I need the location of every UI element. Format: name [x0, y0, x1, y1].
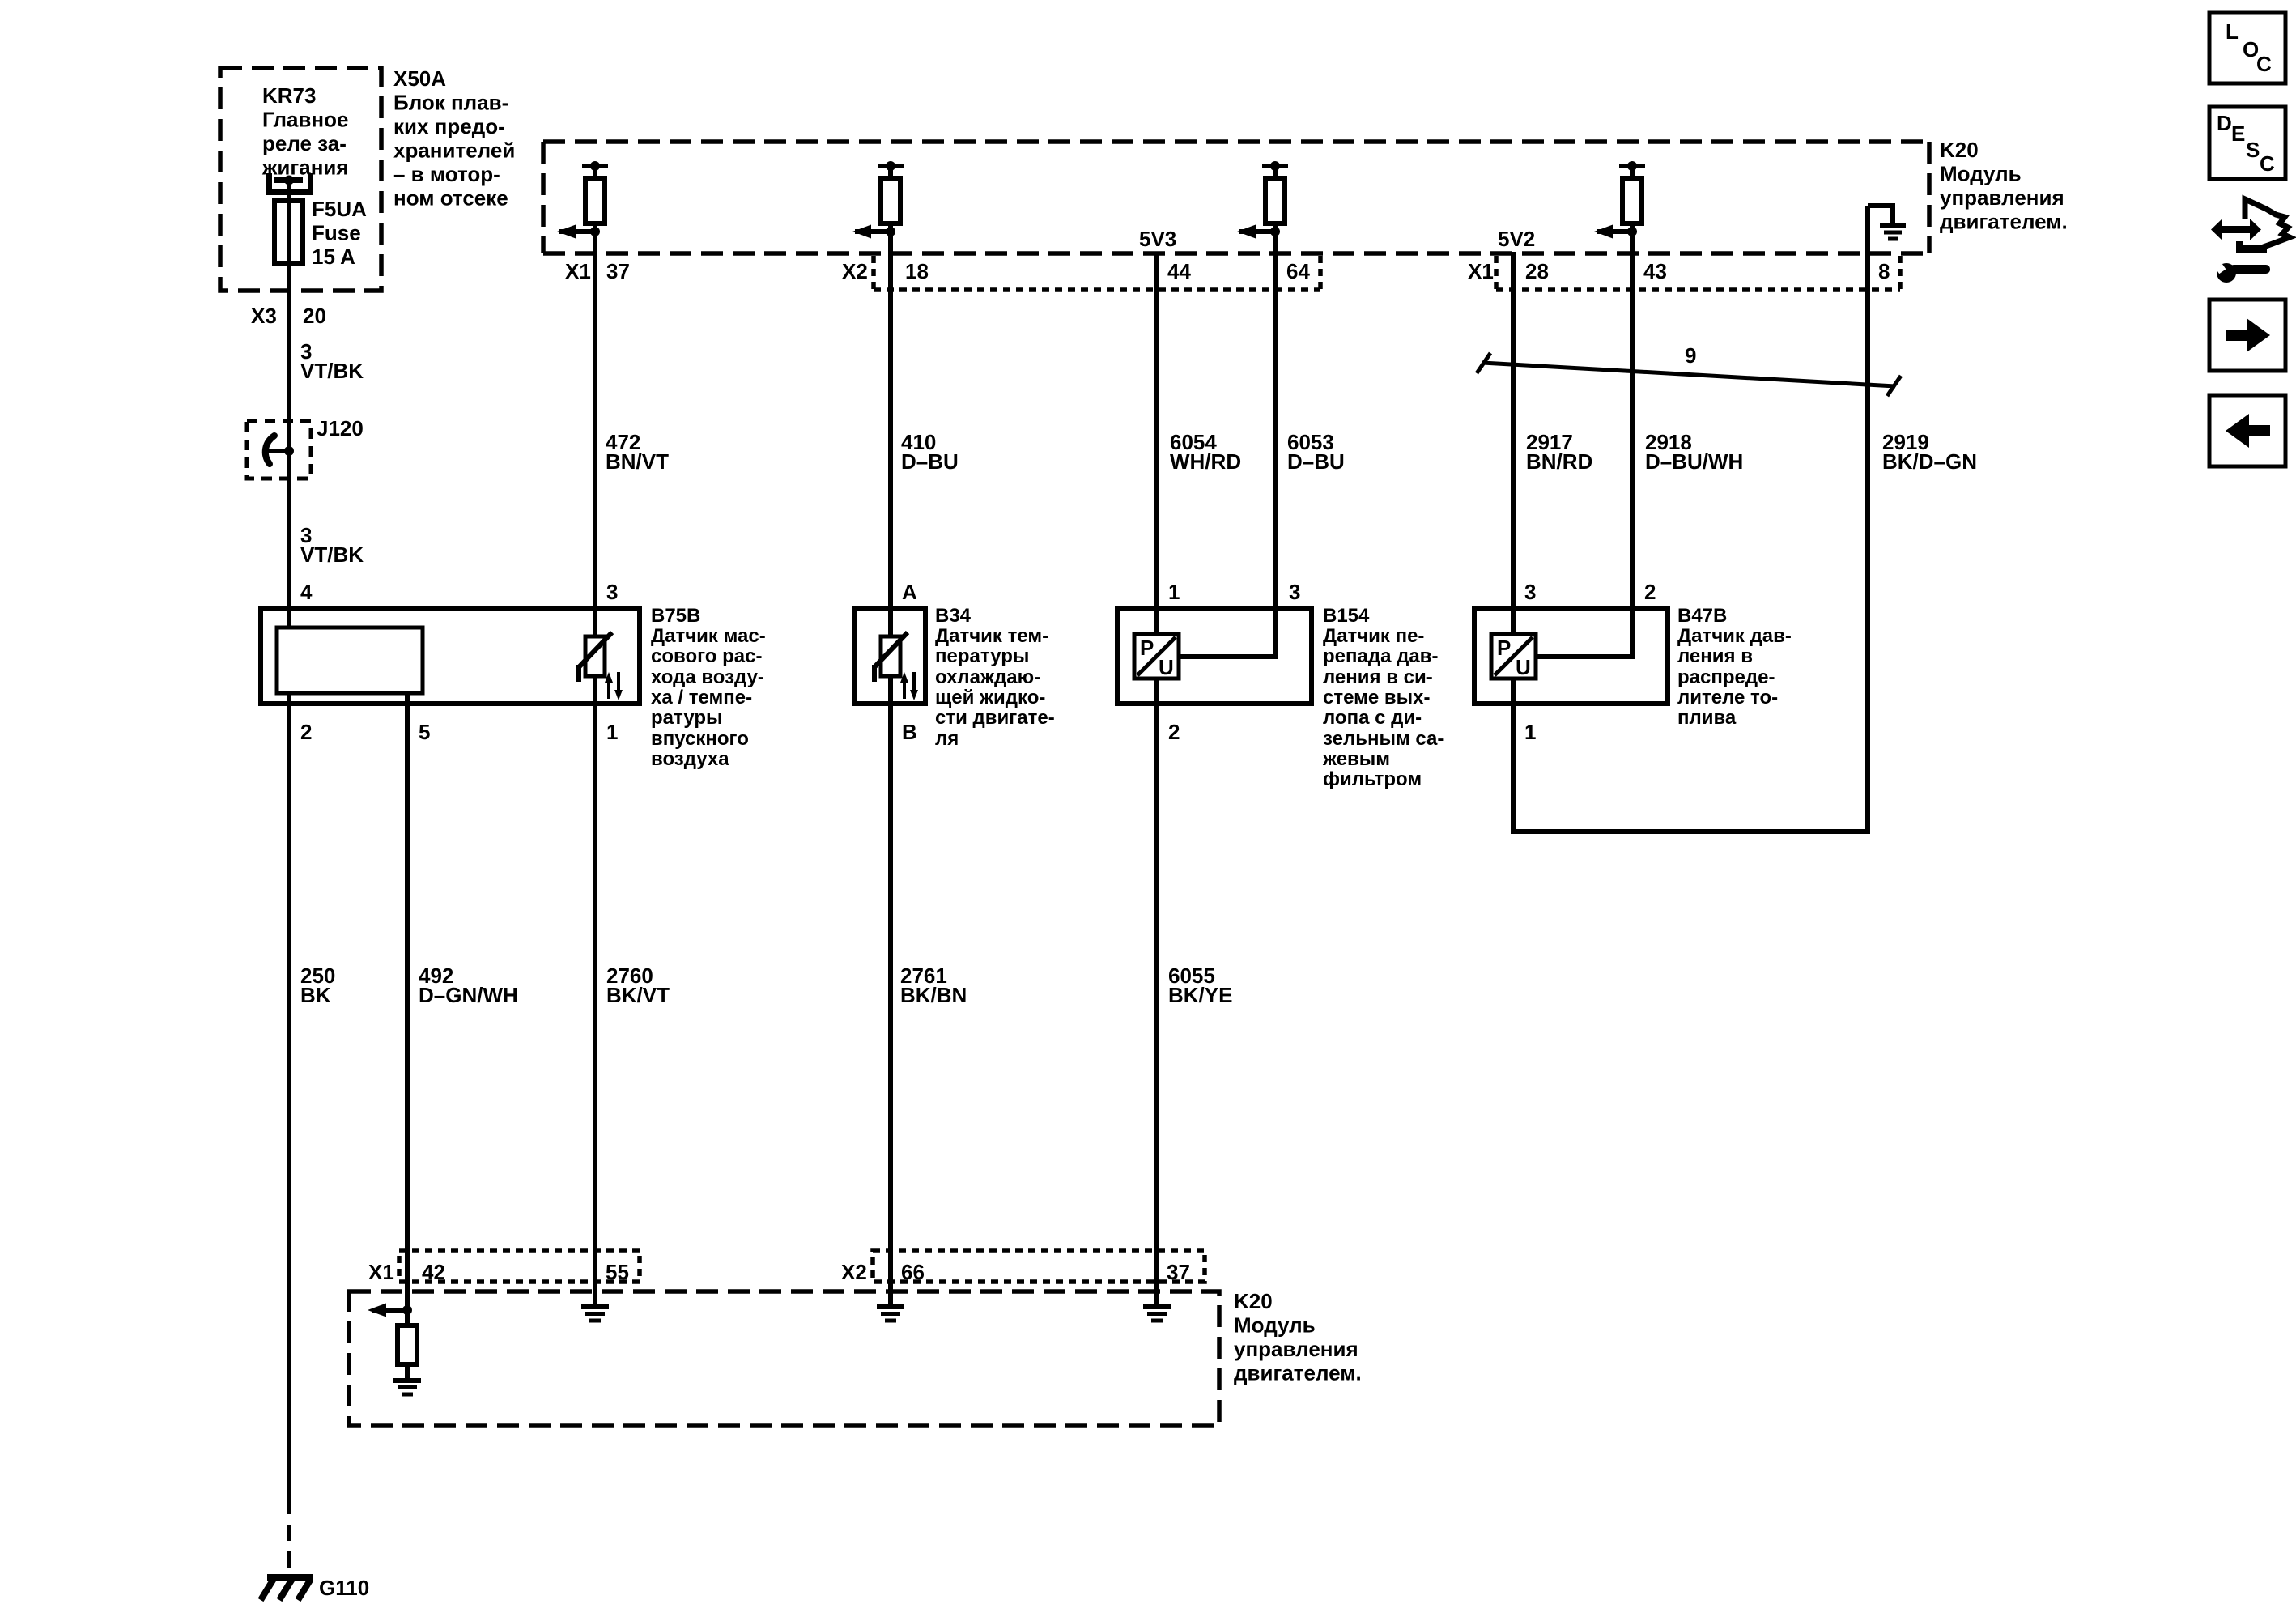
- svg-text:X3: X3: [251, 304, 277, 328]
- svg-text:G110: G110: [319, 1576, 369, 1600]
- svg-text:X50A: X50A: [393, 66, 446, 91]
- svg-text:P: P: [1140, 636, 1154, 660]
- svg-text:Модуль: Модуль: [1940, 162, 2022, 186]
- svg-text:5V2: 5V2: [1498, 227, 1535, 251]
- svg-text:S: S: [2246, 138, 2260, 162]
- svg-text:8: 8: [1878, 259, 1890, 283]
- svg-text:3: 3: [1524, 580, 1536, 604]
- svg-text:5V3: 5V3: [1139, 227, 1176, 251]
- svg-text:жевым: жевым: [1322, 748, 1390, 770]
- svg-text:B34: B34: [935, 605, 972, 627]
- svg-text:X1: X1: [368, 1260, 394, 1284]
- svg-text:управления: управления: [1940, 185, 2064, 210]
- svg-text:BK/YE: BK/YE: [1168, 983, 1232, 1007]
- svg-text:20: 20: [303, 304, 326, 328]
- svg-text:двигателем.: двигателем.: [1940, 210, 2068, 234]
- svg-text:D–BU/WH: D–BU/WH: [1645, 449, 1743, 474]
- svg-text:3: 3: [1289, 580, 1300, 604]
- svg-text:5: 5: [419, 720, 430, 744]
- svg-text:WH/RD: WH/RD: [1170, 449, 1241, 474]
- svg-text:Главное: Главное: [262, 108, 348, 132]
- svg-text:двигателем.: двигателем.: [1234, 1361, 1362, 1385]
- svg-text:1: 1: [1524, 720, 1536, 744]
- svg-text:9: 9: [1685, 343, 1696, 368]
- svg-text:3: 3: [606, 580, 618, 604]
- svg-text:BN/RD: BN/RD: [1526, 449, 1592, 474]
- svg-text:Датчик тем-: Датчик тем-: [935, 625, 1048, 647]
- svg-text:X2: X2: [842, 259, 868, 283]
- svg-text:D–GN/WH: D–GN/WH: [419, 983, 518, 1007]
- svg-text:E: E: [2231, 121, 2245, 146]
- svg-text:Модуль: Модуль: [1234, 1313, 1316, 1338]
- svg-text:BN/VT: BN/VT: [606, 449, 669, 474]
- svg-text:D–BU: D–BU: [1287, 449, 1345, 474]
- svg-text:2: 2: [1168, 720, 1180, 744]
- svg-text:стеме вых-: стеме вых-: [1323, 687, 1431, 708]
- svg-text:C: C: [2256, 52, 2272, 76]
- svg-text:Датчик дав-: Датчик дав-: [1677, 625, 1792, 647]
- svg-text:охлаждаю-: охлаждаю-: [935, 666, 1040, 688]
- svg-text:распреде-: распреде-: [1677, 666, 1775, 688]
- svg-text:ля: ля: [935, 728, 959, 750]
- svg-text:66: 66: [901, 1260, 925, 1284]
- svg-text:VT/BK: VT/BK: [300, 359, 364, 383]
- svg-text:KR73: KR73: [262, 83, 316, 108]
- svg-text:15 A: 15 A: [312, 245, 355, 269]
- svg-text:зельным са-: зельным са-: [1323, 728, 1444, 750]
- svg-text:управления: управления: [1234, 1337, 1358, 1361]
- svg-text:Блок плав-: Блок плав-: [393, 91, 508, 115]
- svg-text:1: 1: [606, 720, 618, 744]
- svg-text:44: 44: [1167, 259, 1191, 283]
- svg-text:J120: J120: [317, 416, 364, 440]
- svg-text:пературы: пературы: [935, 645, 1029, 667]
- svg-text:BK: BK: [300, 983, 331, 1007]
- svg-text:B: B: [902, 720, 917, 744]
- svg-text:ления в си-: ления в си-: [1323, 666, 1433, 688]
- svg-text:64: 64: [1286, 259, 1310, 283]
- svg-text:ления в: ления в: [1677, 645, 1753, 667]
- svg-text:42: 42: [422, 1260, 445, 1284]
- svg-text:хода возду-: хода возду-: [651, 666, 764, 688]
- svg-text:ном отсеке: ном отсеке: [393, 186, 508, 211]
- svg-text:лопа с ди-: лопа с ди-: [1323, 707, 1422, 729]
- svg-text:лителе то-: лителе то-: [1677, 687, 1778, 708]
- svg-text:B75B: B75B: [651, 605, 700, 627]
- svg-text:B47B: B47B: [1677, 605, 1727, 627]
- svg-text:F5UA: F5UA: [312, 197, 367, 221]
- svg-text:D–BU: D–BU: [901, 449, 959, 474]
- svg-text:B154: B154: [1323, 605, 1370, 627]
- svg-text:P: P: [1497, 636, 1511, 660]
- svg-text:– в мотор-: – в мотор-: [393, 162, 500, 186]
- svg-text:щей жидко-: щей жидко-: [935, 687, 1045, 708]
- svg-text:X1: X1: [565, 259, 591, 283]
- svg-text:28: 28: [1525, 259, 1549, 283]
- svg-text:D: D: [2217, 111, 2232, 135]
- svg-text:X2: X2: [841, 1260, 867, 1284]
- svg-text:55: 55: [606, 1260, 629, 1284]
- svg-text:BK/BN: BK/BN: [900, 983, 967, 1007]
- svg-text:C: C: [2260, 151, 2275, 176]
- svg-text:ратуры: ратуры: [651, 707, 723, 729]
- svg-text:BK/VT: BK/VT: [606, 983, 670, 1007]
- svg-text:сового рас-: сового рас-: [651, 645, 762, 667]
- svg-text:BK/D–GN: BK/D–GN: [1882, 449, 1977, 474]
- svg-text:U: U: [1516, 655, 1531, 679]
- svg-text:реле за-: реле за-: [262, 131, 347, 155]
- svg-text:L: L: [2226, 19, 2239, 44]
- svg-text:U: U: [1159, 655, 1174, 679]
- svg-text:жигания: жигания: [261, 155, 349, 180]
- svg-text:фильтром: фильтром: [1323, 768, 1422, 790]
- svg-text:2: 2: [1644, 580, 1656, 604]
- svg-text:Датчик пе-: Датчик пе-: [1323, 625, 1424, 647]
- svg-text:37: 37: [1167, 1260, 1190, 1284]
- svg-text:VT/BK: VT/BK: [300, 542, 364, 567]
- svg-text:A: A: [902, 580, 917, 604]
- svg-text:сти двигате-: сти двигате-: [935, 707, 1055, 729]
- svg-text:K20: K20: [1940, 138, 1979, 162]
- svg-text:воздуха: воздуха: [651, 748, 729, 770]
- svg-text:K20: K20: [1234, 1289, 1273, 1313]
- svg-text:Fuse: Fuse: [312, 221, 361, 245]
- svg-text:ких предо-: ких предо-: [393, 114, 505, 138]
- svg-text:впускного: впускного: [651, 728, 749, 750]
- svg-text:X1: X1: [1468, 259, 1494, 283]
- svg-text:плива: плива: [1677, 707, 1737, 729]
- svg-text:1: 1: [1168, 580, 1180, 604]
- svg-text:4: 4: [300, 580, 313, 604]
- svg-text:Датчик мас-: Датчик мас-: [651, 625, 766, 647]
- svg-text:43: 43: [1643, 259, 1667, 283]
- svg-text:хранителей: хранителей: [393, 138, 515, 163]
- svg-text:18: 18: [905, 259, 929, 283]
- svg-text:37: 37: [606, 259, 630, 283]
- svg-text:репада дав-: репада дав-: [1323, 645, 1438, 667]
- svg-text:2: 2: [300, 720, 312, 744]
- svg-text:ха / темпе-: ха / темпе-: [651, 687, 752, 708]
